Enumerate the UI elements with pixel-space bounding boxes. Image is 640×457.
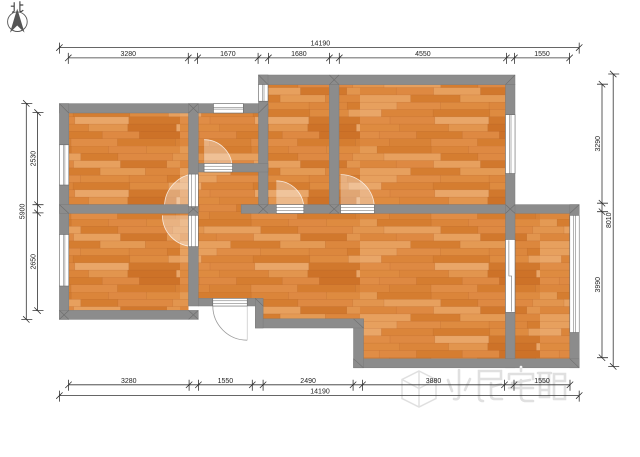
svg-text:14190: 14190 [311,41,331,48]
svg-text:14190: 14190 [310,389,330,396]
svg-text:3290: 3290 [595,136,602,152]
svg-text:2530: 2530 [31,151,38,167]
svg-text:2650: 2650 [31,254,38,270]
svg-text:2490: 2490 [300,378,316,385]
svg-text:1550: 1550 [534,51,550,58]
svg-text:8010: 8010 [606,212,613,228]
svg-text:4550: 4550 [415,51,431,58]
svg-text:1680: 1680 [291,51,307,58]
svg-text:3990: 3990 [595,277,602,293]
svg-text:5900: 5900 [19,204,26,220]
svg-text:3880: 3880 [426,378,442,385]
svg-text:3280: 3280 [121,378,137,385]
svg-text:1550: 1550 [534,378,550,385]
svg-text:1670: 1670 [220,51,236,58]
svg-text:3280: 3280 [121,51,137,58]
svg-text:1550: 1550 [218,378,234,385]
